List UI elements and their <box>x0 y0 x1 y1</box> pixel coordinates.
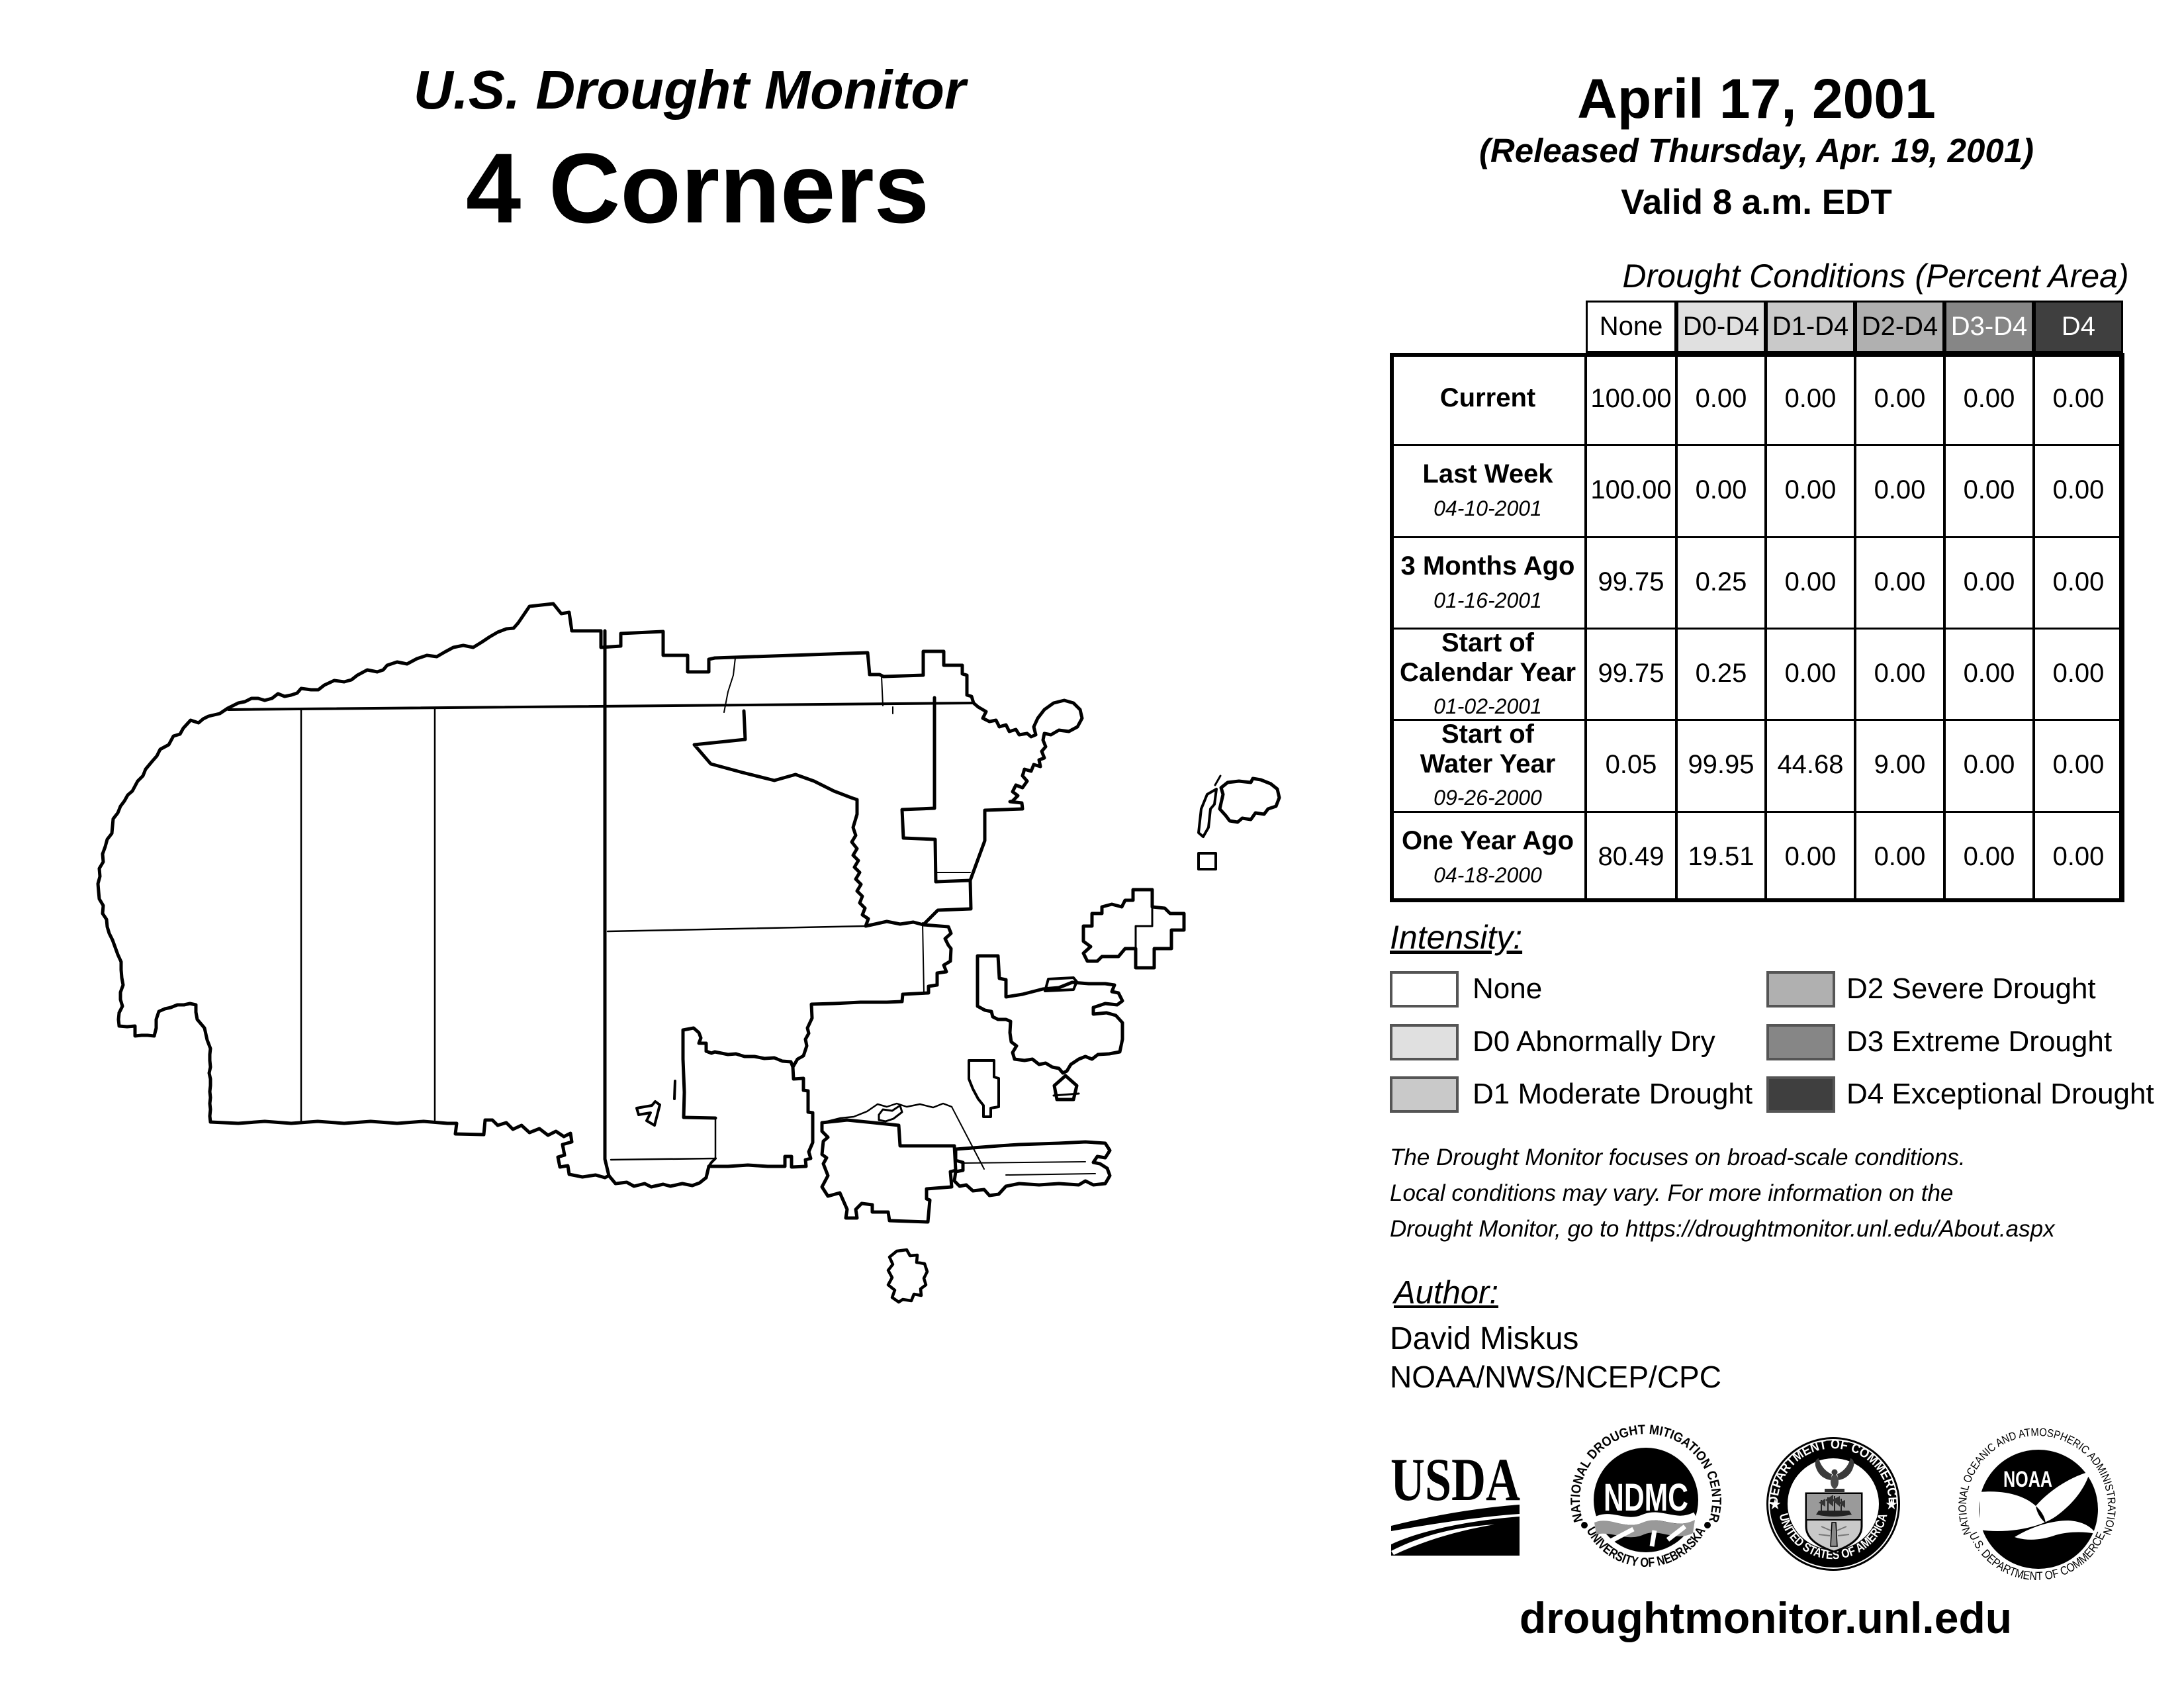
svg-text:★: ★ <box>1768 1496 1782 1513</box>
svg-text:NDMC: NDMC <box>1604 1476 1688 1519</box>
svg-text:USDA: USDA <box>1390 1446 1520 1513</box>
svg-text:★: ★ <box>1885 1496 1898 1513</box>
svg-text:NOAA: NOAA <box>2003 1467 2052 1492</box>
